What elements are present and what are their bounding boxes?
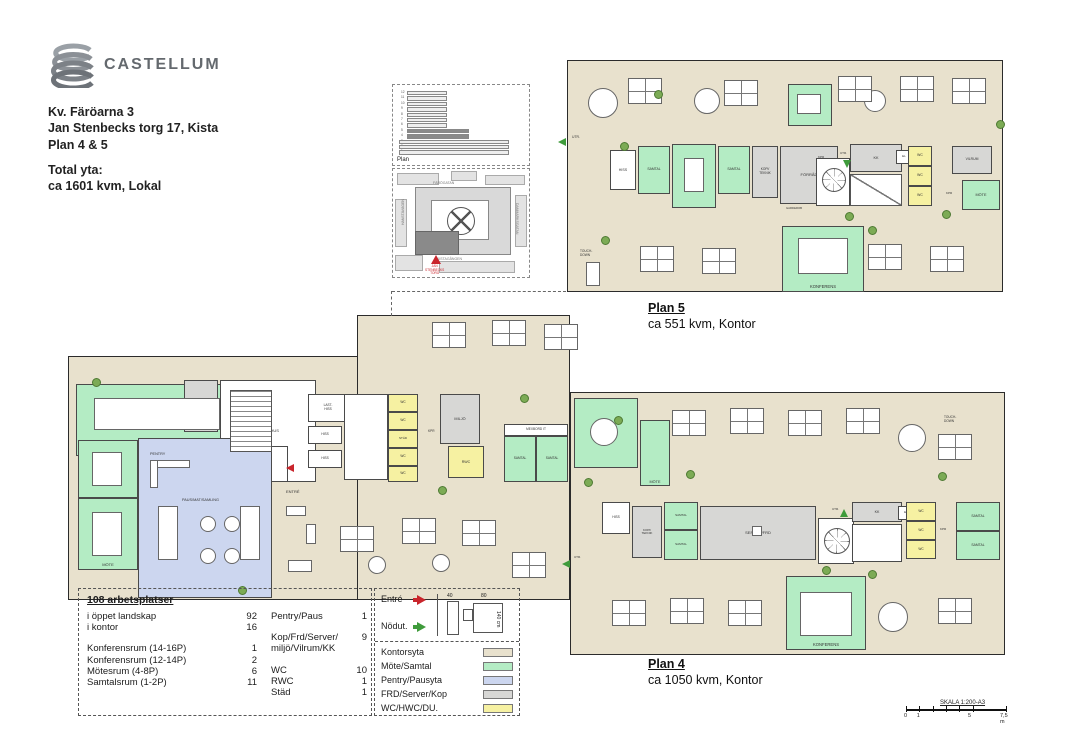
room	[852, 524, 902, 562]
plan-annotation: KPR	[940, 528, 946, 531]
stats-value: 1	[362, 676, 367, 687]
room: SAMTAL	[956, 502, 1000, 531]
room-label: RWC	[461, 459, 472, 465]
table	[684, 158, 704, 192]
table	[586, 262, 600, 286]
room-label: WC	[917, 547, 924, 553]
room: HISS	[602, 502, 630, 534]
room-label: HISS	[618, 167, 628, 173]
table	[798, 238, 848, 274]
legend-row: WC/HWC/DU.	[381, 701, 513, 715]
room-label: HISS	[611, 515, 620, 521]
room-label: MEXBORD IT	[525, 427, 547, 433]
scale-tick-label: 0	[904, 713, 907, 719]
room: WC	[388, 448, 418, 466]
room: WC	[908, 166, 932, 186]
plan5-caption: Plan 5 ca 551 kvm, Kontor	[648, 300, 756, 333]
table	[752, 526, 762, 536]
legend-divider	[437, 594, 438, 636]
plant-icon	[822, 566, 831, 575]
room-label: SAMTAL	[674, 542, 688, 547]
desk-cluster	[672, 410, 706, 436]
stats-value: 1	[362, 611, 367, 622]
plan-annotation: UTR.	[574, 556, 581, 559]
round-table	[432, 554, 450, 572]
round-table	[224, 516, 240, 532]
table	[240, 506, 260, 560]
room-label: KONFERENS	[812, 642, 840, 649]
room: KOPI/ TEKNIK	[632, 506, 662, 558]
round-table	[224, 548, 240, 564]
legend-row: FRD/Server/Kop	[381, 687, 513, 701]
stats-label: Pentry/Paus	[271, 611, 323, 622]
plan-annotation: KPR	[818, 156, 824, 159]
room: SAMTAL	[664, 502, 698, 530]
table	[150, 460, 158, 488]
round-table	[200, 516, 216, 532]
legend-color-list: KontorsytaMöte/SamtalPentry/PausytaFRD/S…	[375, 642, 519, 718]
scale-tick	[973, 706, 974, 712]
round-table	[898, 424, 926, 452]
legend-box: Entré Nödut. 40 80 140 cm KontorsytaMöte…	[374, 588, 520, 716]
plant-icon	[686, 470, 695, 479]
stats-column-left: i öppet landskap92i kontor16Konferensrum…	[87, 611, 257, 688]
scale-tick-label: 7,5 m	[1000, 713, 1012, 725]
stats-gap	[271, 655, 367, 665]
stats-value: 10	[356, 665, 367, 676]
desk-cluster	[612, 600, 646, 626]
room-label: SAMTAL	[674, 513, 688, 518]
legend-label: Kontorsyta	[381, 647, 424, 657]
plan-annotation: KPR	[428, 430, 435, 434]
table	[288, 560, 312, 572]
door-leaf-small	[447, 601, 459, 635]
room-label: KONFERENS	[809, 284, 837, 291]
plan4-title: Plan 4	[648, 656, 763, 672]
workplace-stats-table: 108 arbetsplatser i öppet landskap92i ko…	[78, 588, 372, 716]
spiral-stair	[824, 528, 850, 554]
stats-label: i öppet landskap	[87, 611, 156, 622]
exit-arrow-icon	[843, 160, 851, 168]
desk-cluster	[788, 410, 822, 436]
legend-swatch	[483, 662, 513, 671]
stats-label: Konferensrum (12-14P)	[87, 655, 186, 666]
scale-tick	[919, 706, 920, 712]
entre-arrow-tail	[413, 598, 419, 602]
plant-icon	[614, 416, 623, 425]
desk-cluster	[402, 518, 436, 544]
legend-row: Kontorsyta	[381, 645, 513, 659]
room: WC	[906, 521, 936, 540]
room-label: STÄD	[398, 436, 408, 441]
stats-gap	[271, 622, 367, 632]
scale-tick	[906, 706, 907, 712]
room-label: EL	[901, 154, 907, 159]
exit-arrow-icon	[558, 138, 566, 146]
void-area	[850, 174, 902, 206]
room-label: KK	[872, 155, 879, 161]
legend-row: Pentry/Pausyta	[381, 673, 513, 687]
room: MEXBORD IT	[504, 424, 568, 436]
plant-icon	[942, 210, 951, 219]
room-label: HISS	[320, 432, 329, 438]
room: WC	[906, 502, 936, 521]
plan-annotation: GARDEROB	[786, 207, 802, 210]
stats-row: Konferensrum (14-16P)1	[87, 643, 257, 654]
table	[92, 512, 122, 556]
room-label: WC	[917, 528, 924, 534]
legend-swatch	[483, 676, 513, 685]
nodut-label: Nödut.	[381, 621, 408, 631]
nodut-arrow-tail	[413, 625, 419, 629]
stats-value: 92	[246, 611, 257, 622]
plant-icon	[996, 120, 1005, 129]
room: MÖTE	[640, 420, 670, 486]
room: MÖTE	[962, 180, 1000, 210]
door-knob	[463, 609, 473, 621]
desk-cluster	[838, 76, 872, 102]
stats-gap	[87, 633, 257, 643]
straight-stair	[230, 390, 272, 452]
desk-cluster	[930, 246, 964, 272]
legend-swatch	[483, 690, 513, 699]
stats-row: WC10	[271, 665, 367, 676]
room-label: SAMTAL	[726, 167, 741, 173]
spiral-stair	[822, 168, 846, 192]
desk-cluster	[724, 80, 758, 106]
round-table	[878, 602, 908, 632]
plan-annotation: ENTRÉ	[286, 490, 300, 495]
door-dim-80: 80	[481, 593, 487, 599]
plan-annotation: KPR	[946, 192, 952, 195]
room-label: KOPI/ TEKNIK	[758, 167, 772, 176]
round-table	[694, 88, 720, 114]
desk-cluster	[640, 246, 674, 272]
stats-label: Kop/Frd/Server/ miljö/Vilrum/KK	[271, 632, 338, 654]
desk-cluster	[462, 520, 496, 546]
room-label: WC	[399, 400, 406, 406]
scale-line	[906, 709, 1006, 711]
room: WC	[388, 412, 418, 430]
room-label: KOPI/ TEKNIK	[641, 528, 654, 537]
legend-label: WC/HWC/DU.	[381, 703, 438, 713]
plan-annotation: PAUS/MAT/SAMLING	[182, 498, 219, 502]
desk-cluster	[512, 552, 546, 578]
room-label: WC	[916, 193, 924, 199]
room-label: WC	[399, 418, 406, 424]
legend-label: Pentry/Pausyta	[381, 675, 442, 685]
room: SAMTAL	[664, 530, 698, 560]
legend-label: Möte/Samtal	[381, 661, 432, 671]
desk-cluster	[340, 526, 374, 552]
plan-annotation: UTR.	[840, 152, 847, 155]
room: STÄD	[388, 430, 418, 448]
room: HISS	[610, 150, 636, 190]
plan4-caption: Plan 4 ca 1050 kvm, Kontor	[648, 656, 763, 689]
scale-tick	[1006, 706, 1007, 712]
room-label: VILRUM	[965, 157, 980, 163]
room-label: WC	[916, 173, 924, 179]
table	[158, 506, 178, 560]
room	[344, 394, 388, 480]
room-label: MILJÖ	[453, 416, 466, 422]
room-label: WC	[399, 471, 406, 477]
stats-title: 108 arbetsplatser	[87, 594, 363, 606]
desk-cluster	[868, 244, 902, 270]
stats-row: RWC1	[271, 676, 367, 687]
plant-icon	[520, 394, 529, 403]
entre-label: Entré	[381, 594, 403, 604]
stats-value: 1	[362, 687, 367, 698]
stats-row: i kontor16	[87, 622, 257, 633]
stats-row: Städ1	[271, 687, 367, 698]
round-table	[200, 548, 216, 564]
plant-icon	[845, 212, 854, 221]
drawing-sheet: CASTELLUM Kv. Färöarna 3 Jan Stenbecks t…	[0, 0, 1067, 754]
stats-label: Samtalsrum (1-2P)	[87, 677, 167, 688]
stats-value: 11	[247, 677, 257, 688]
stats-value: 9	[362, 632, 367, 654]
room: KK	[852, 502, 902, 522]
plan4-subtitle: ca 1050 kvm, Kontor	[648, 672, 763, 688]
room-label: SAMTAL	[545, 456, 560, 462]
stats-label: Städ	[271, 687, 291, 698]
stats-row: Kop/Frd/Server/ miljö/Vilrum/KK9	[271, 632, 367, 654]
room: SAMTAL	[956, 531, 1000, 560]
door-dim-40: 40	[447, 593, 453, 599]
plan-annotation: PENTRY	[150, 452, 165, 456]
room: LAST- HISS	[308, 394, 348, 422]
round-table	[368, 556, 386, 574]
room-label: WC	[399, 454, 406, 460]
desk-cluster	[702, 248, 736, 274]
stats-value: 16	[246, 622, 257, 633]
room: RWC	[448, 446, 484, 478]
stats-value: 2	[252, 655, 257, 666]
plant-icon	[584, 478, 593, 487]
entre-arrow-icon	[286, 464, 294, 472]
stats-column-right: Pentry/Paus1Kop/Frd/Server/ miljö/Vilrum…	[271, 611, 367, 698]
room-label: SAMTAL	[513, 456, 528, 462]
room: WC	[906, 540, 936, 559]
scale-tick-label: 1	[917, 713, 920, 719]
legend-label: FRD/Server/Kop	[381, 689, 447, 699]
desk-cluster	[938, 598, 972, 624]
desk-cluster	[730, 408, 764, 434]
desk-cluster	[900, 76, 934, 102]
stats-label: RWC	[271, 676, 294, 687]
plant-icon	[868, 570, 877, 579]
stats-value: 1	[252, 643, 257, 654]
legend-entrances: Entré Nödut. 40 80 140 cm	[375, 589, 519, 642]
plant-icon	[868, 226, 877, 235]
plan-annotation: TOUCH- DOWN	[944, 416, 956, 423]
stats-label: WC	[271, 665, 287, 676]
room: HISS	[308, 450, 342, 468]
legend-swatch	[483, 704, 513, 713]
stats-value: 6	[252, 666, 257, 677]
desk-cluster	[670, 598, 704, 624]
door-dim-140: 140 cm	[495, 611, 501, 627]
plan-annotation: UTR.	[832, 508, 839, 511]
stats-label: i kontor	[87, 622, 118, 633]
desk-cluster	[492, 320, 526, 346]
room: KOPI/ TEKNIK	[752, 146, 778, 198]
room-label: WC	[917, 509, 924, 515]
stats-row: Samtalsrum (1-2P)11	[87, 677, 257, 688]
plan-annotation: TOUCH- DOWN	[580, 250, 592, 257]
room-label: LAST- HISS	[323, 403, 334, 412]
room: VILRUM	[952, 146, 992, 174]
plant-icon	[92, 378, 101, 387]
room-label: HISS	[320, 456, 329, 462]
stats-label: Mötesrum (4-8P)	[87, 666, 158, 677]
room-label: SAMTAL	[970, 543, 985, 549]
room-label: SAMTAL	[970, 514, 985, 520]
room-label: KK	[874, 509, 881, 515]
desk-cluster	[432, 322, 466, 348]
room: WC	[908, 186, 932, 206]
stats-row: Konferensrum (12-14P)2	[87, 655, 257, 666]
table	[286, 506, 306, 516]
room-label: WC	[916, 153, 924, 159]
round-table	[588, 88, 618, 118]
room: MILJÖ	[440, 394, 480, 444]
exit-arrow-icon	[562, 560, 570, 568]
room: HISS	[308, 426, 342, 444]
legend-swatch	[483, 648, 513, 657]
legend-row: Möte/Samtal	[381, 659, 513, 673]
plant-icon	[438, 486, 447, 495]
room: WC	[388, 394, 418, 412]
table	[797, 94, 821, 114]
room: WC	[908, 146, 932, 166]
boundary-dash-line	[391, 291, 392, 316]
exit-arrow-icon	[840, 509, 848, 517]
room: SAMTAL	[638, 146, 670, 194]
plan5-title: Plan 5	[648, 300, 756, 316]
boundary-dash-line	[392, 291, 566, 292]
table	[92, 452, 122, 486]
plant-icon	[620, 142, 629, 151]
room: SAMTAL	[504, 436, 536, 482]
room-label: MÖTE	[101, 562, 115, 569]
scale-tick	[946, 706, 947, 712]
plant-icon	[601, 236, 610, 245]
stats-row: Pentry/Paus1	[271, 611, 367, 622]
desk-cluster	[938, 434, 972, 460]
table	[306, 524, 316, 544]
stats-row: Mötesrum (4-8P)6	[87, 666, 257, 677]
desk-cluster	[728, 600, 762, 626]
room-label: SAMTAL	[646, 167, 661, 173]
room: KK	[850, 144, 902, 172]
table	[94, 398, 220, 430]
scale-tick-label: 5	[968, 713, 971, 719]
stats-row: i öppet landskap92	[87, 611, 257, 622]
room-label: MÖTE	[649, 479, 662, 485]
table	[800, 592, 852, 636]
scale-tick	[933, 706, 934, 712]
room: WC	[388, 466, 418, 482]
room: SAMTAL	[718, 146, 750, 194]
plan5-subtitle: ca 551 kvm, Kontor	[648, 316, 756, 332]
room-label: MÖTE	[975, 192, 988, 198]
room: SAMTAL	[536, 436, 568, 482]
stats-label: Konferensrum (14-16P)	[87, 643, 186, 654]
desk-cluster	[952, 78, 986, 104]
desk-cluster	[544, 324, 578, 350]
plant-icon	[938, 472, 947, 481]
plan-annotation: UTR.	[572, 136, 580, 140]
scale-tick	[959, 706, 960, 712]
desk-cluster	[846, 408, 880, 434]
plant-icon	[654, 90, 663, 99]
